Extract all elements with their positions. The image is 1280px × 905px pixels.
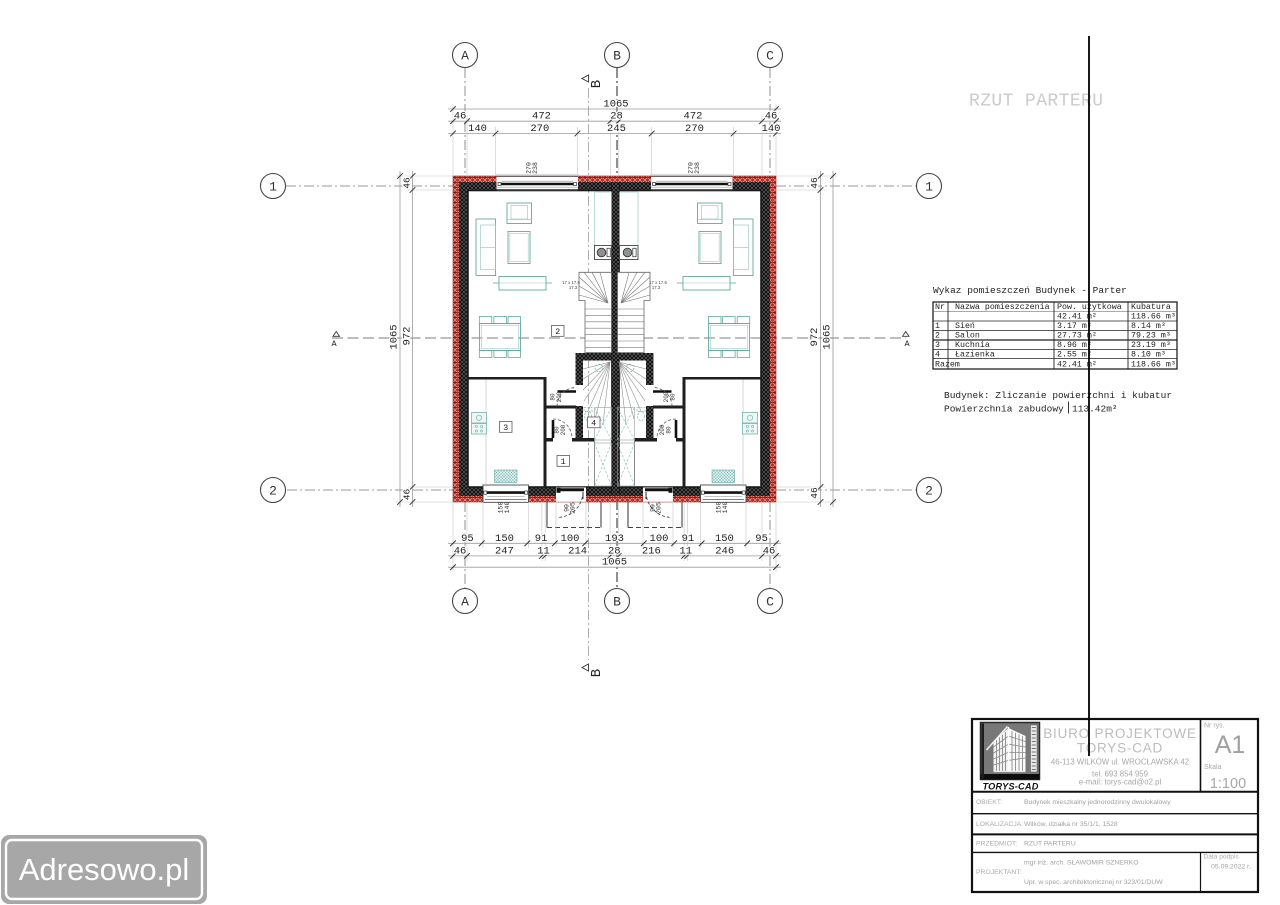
svg-text:46-113 WILKÓW ul. WROCŁAWSKA 4: 46-113 WILKÓW ul. WROCŁAWSKA 42 [1051,758,1189,767]
svg-text:2: 2 [935,332,940,341]
svg-text:Łazienka: Łazienka [955,349,995,359]
svg-text:270: 270 [530,123,549,135]
svg-text:Budynek mieszkalny jednorodzin: Budynek mieszkalny jednorodzinny dwuloka… [1024,799,1171,806]
svg-text:C: C [766,595,774,610]
svg-text:Kuchnia: Kuchnia [955,340,990,350]
svg-text:Upr. w spec. architektonicznej: Upr. w spec. architektonicznej nr 323/01… [1024,879,1163,886]
svg-text:B: B [589,669,605,677]
svg-text:2: 2 [269,484,277,499]
svg-text:RZUT PARTERU: RZUT PARTERU [1024,841,1076,848]
svg-text:C: C [766,49,774,64]
svg-text:TORYS-CAD: TORYS-CAD [982,782,1038,792]
svg-text:Sień: Sień [955,321,975,331]
svg-text:80: 80 [670,393,677,401]
svg-text:1065: 1065 [603,99,628,111]
svg-text:mgr inż. arch. SŁAWOMIR SZNERK: mgr inż. arch. SŁAWOMIR SZNERKO [1024,860,1139,867]
svg-text:472: 472 [684,111,703,123]
svg-text:46: 46 [763,545,776,557]
svg-text:Skala: Skala [1204,764,1222,771]
svg-text:17.3: 17.3 [569,285,578,290]
svg-text:8.96 m²: 8.96 m² [1057,341,1092,350]
svg-text:Budynek: Zliczanie powierzchni: Budynek: Zliczanie powierzchni i kubatur [944,390,1172,401]
svg-text:8.14 m³: 8.14 m³ [1131,322,1166,331]
svg-text:46: 46 [402,489,413,501]
svg-text:3: 3 [503,423,508,433]
svg-text:245: 245 [607,123,626,135]
svg-text:1:100: 1:100 [1210,776,1246,792]
svg-text:Nr rys.: Nr rys. [1204,723,1225,730]
svg-text:118.66 m³: 118.66 m³ [1131,313,1176,322]
svg-text:Powierzchnia zabudowy: Powierzchnia zabudowy [944,404,1064,415]
svg-text:193: 193 [605,533,624,545]
svg-text:e-mail: torys-cad@o2.pl: e-mail: torys-cad@o2.pl [1079,778,1162,787]
svg-text:1065: 1065 [822,324,834,349]
svg-text:OBIEKT:: OBIEKT: [976,799,1002,806]
svg-text:91: 91 [682,533,695,545]
svg-text:Wykaz pomieszczeń Budynek - Pa: Wykaz pomieszczeń Budynek - Parter [933,285,1127,296]
svg-text:Adresowo.pl: Adresowo.pl [19,852,190,887]
svg-text:A: A [461,49,469,64]
svg-text:140: 140 [504,502,511,514]
svg-text:B: B [589,80,605,88]
svg-text:4: 4 [591,419,596,429]
svg-text:11: 11 [537,545,550,557]
svg-text:1: 1 [269,180,277,195]
svg-text:Wilków, działka nr 35/1/1, 152: Wilków, działka nr 35/1/1, 1528 [1024,821,1118,828]
svg-text:140: 140 [468,123,487,135]
svg-text:8.10 m³: 8.10 m³ [1131,350,1166,359]
svg-text:1065: 1065 [389,324,401,349]
svg-text:28: 28 [610,111,623,123]
svg-text:A: A [904,339,910,349]
svg-text:270: 270 [685,123,704,135]
svg-text:RZUT PARTERU: RZUT PARTERU [969,92,1103,112]
svg-text:972: 972 [809,328,821,347]
svg-text:200: 200 [560,424,567,435]
svg-text:100: 100 [561,533,580,545]
svg-text:205: 205 [570,502,577,514]
svg-text:Salon: Salon [955,331,980,341]
svg-text:246: 246 [715,545,734,557]
svg-text:46: 46 [809,177,820,189]
svg-text:Data podpis: Data podpis [1204,854,1240,861]
svg-text:05.09.2022 r.: 05.09.2022 r. [1211,864,1251,871]
svg-text:113.42m²: 113.42m² [1072,404,1118,415]
svg-text:200: 200 [659,424,666,435]
svg-text:216: 216 [642,545,661,557]
svg-text:972: 972 [402,327,414,346]
svg-text:91: 91 [535,533,548,545]
svg-text:42.41 m²: 42.41 m² [1057,313,1097,322]
svg-text:46: 46 [809,487,820,499]
svg-text:46: 46 [402,177,413,189]
svg-text:472: 472 [532,111,551,123]
svg-text:28: 28 [608,545,621,557]
svg-text:2.55 m²: 2.55 m² [1057,350,1092,359]
svg-text:1: 1 [561,457,566,467]
svg-text:238: 238 [532,162,539,174]
svg-text:3.17 m²: 3.17 m² [1057,322,1092,331]
svg-text:17.3: 17.3 [652,285,661,290]
svg-text:2: 2 [555,327,560,337]
svg-text:140: 140 [722,502,729,514]
svg-text:B: B [613,49,621,64]
svg-text:46: 46 [765,111,778,123]
svg-text:27.73 m²: 27.73 m² [1057,332,1097,341]
svg-text:247: 247 [495,545,514,557]
svg-text:4: 4 [935,350,940,359]
svg-text:A: A [461,595,469,610]
svg-text:46: 46 [454,545,467,557]
svg-text:205: 205 [656,502,663,514]
svg-text:PRZEDMIOT:: PRZEDMIOT: [976,841,1017,848]
svg-text:42.41 m²: 42.41 m² [1057,360,1097,369]
svg-text:Kubatura: Kubatura [1131,302,1171,312]
svg-text:B: B [613,595,621,610]
svg-text:PROJEKTANT:: PROJEKTANT: [976,869,1022,876]
svg-text:150: 150 [495,533,514,545]
svg-text:140: 140 [762,123,781,135]
svg-text:79.23 m³: 79.23 m³ [1131,332,1171,341]
svg-text:BIURO PROJEKTOWE: BIURO PROJEKTOWE [1043,726,1197,741]
svg-text:46: 46 [454,111,467,123]
svg-text:A1: A1 [1215,731,1246,759]
svg-text:200: 200 [663,391,670,402]
svg-text:150: 150 [715,533,734,545]
svg-text:Razem: Razem [935,360,960,369]
svg-text:Nr: Nr [935,303,945,312]
svg-text:11: 11 [679,545,692,557]
svg-text:2: 2 [925,484,933,499]
svg-text:Nazwa pomieszczenia: Nazwa pomieszczenia [955,302,1050,312]
svg-text:A: A [331,339,337,349]
svg-text:1065: 1065 [602,557,627,569]
svg-text:LOKALIZACJA:: LOKALIZACJA: [976,821,1023,828]
svg-text:118.66 m³: 118.66 m³ [1131,360,1176,369]
svg-text:200: 200 [556,391,563,402]
svg-text:3: 3 [935,341,940,350]
svg-text:80: 80 [666,426,673,434]
svg-text:100: 100 [650,533,669,545]
svg-text:95: 95 [755,533,768,545]
svg-text:95: 95 [461,533,474,545]
svg-text:214: 214 [568,545,587,557]
svg-text:238: 238 [694,162,701,174]
svg-text:1: 1 [925,180,933,195]
svg-text:23.19 m³: 23.19 m³ [1131,341,1171,350]
svg-text:1: 1 [935,322,940,331]
